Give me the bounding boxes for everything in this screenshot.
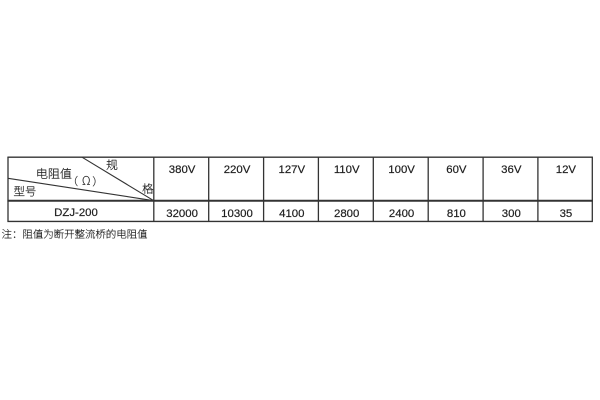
svg-text:36V: 36V: [501, 164, 522, 176]
svg-text:2400: 2400: [389, 208, 414, 220]
svg-text:380V: 380V: [169, 164, 196, 176]
svg-text:32000: 32000: [166, 208, 198, 220]
svg-text:2800: 2800: [334, 208, 359, 220]
svg-text:DZJ-200: DZJ-200: [54, 207, 98, 219]
svg-text:220V: 220V: [224, 164, 251, 176]
svg-text:10300: 10300: [221, 208, 253, 220]
svg-text:127V: 127V: [278, 164, 305, 176]
svg-text:35: 35: [560, 208, 573, 220]
svg-text:4100: 4100: [279, 208, 304, 220]
svg-text:60V: 60V: [446, 164, 467, 176]
svg-text:100V: 100V: [388, 164, 415, 176]
svg-text:300: 300: [502, 208, 521, 220]
svg-text:810: 810: [447, 208, 466, 220]
svg-text:110V: 110V: [334, 164, 360, 176]
svg-text:12V: 12V: [556, 164, 577, 176]
